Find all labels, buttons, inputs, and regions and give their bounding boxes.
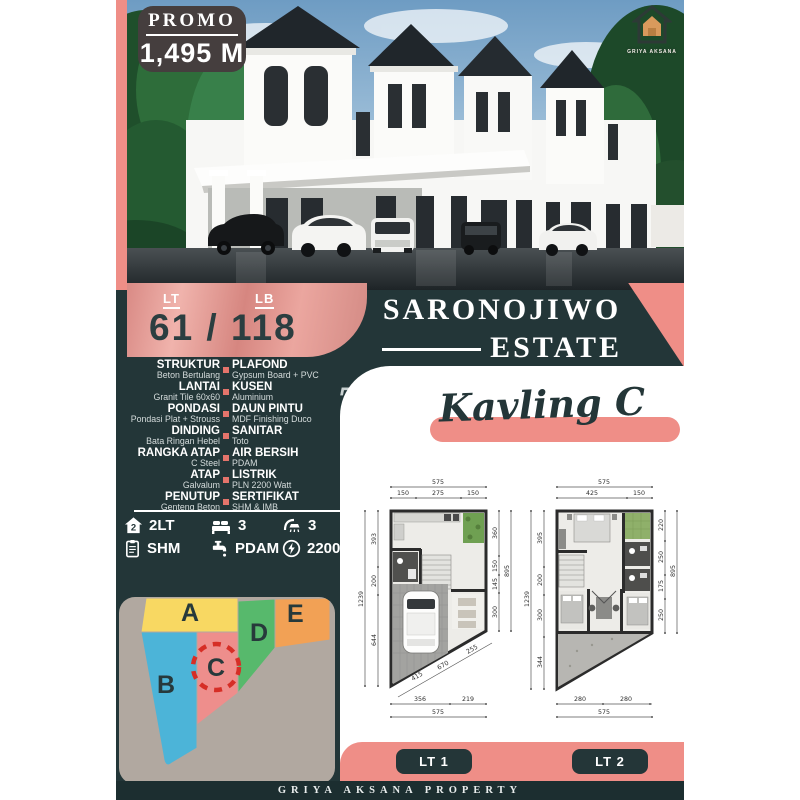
specs-list: STRUKTURBeton Bertulang PLAFONDGypsum Bo… xyxy=(120,360,368,514)
spec-row: LANTAIGranit Tile 60x60 KUSENAluminium xyxy=(120,382,368,402)
block-b-label: B xyxy=(157,671,175,699)
land-size-box: LT LB 61 / 118 xyxy=(127,283,367,357)
specs-divider xyxy=(134,510,350,512)
svg-text:200: 200 xyxy=(371,575,378,587)
flyer: PROMO 1,495 M GRIYA AKSANA LT LB 61 / 11… xyxy=(116,0,684,800)
svg-text:280: 280 xyxy=(620,696,632,703)
floorplan-lt1: 575 150 275 150 393 200 644 1239 360 150… xyxy=(356,471,518,731)
svg-text:150: 150 xyxy=(633,490,645,497)
spec-value: Granit Tile 60x60 xyxy=(120,393,220,402)
spec-bullet-square xyxy=(223,389,229,395)
promo-price: 1,495 M xyxy=(140,38,245,69)
svg-text:895: 895 xyxy=(504,565,511,577)
bed-icon xyxy=(210,517,232,535)
power-bolt-icon xyxy=(282,539,301,558)
lt1-badge: LT 1 xyxy=(396,749,472,774)
promo-label: PROMO xyxy=(146,10,238,36)
logo-text: GRIYA AKSANA xyxy=(622,49,682,55)
spec-bullet-square xyxy=(223,499,229,505)
feature-label: PDAM xyxy=(235,540,279,557)
spec-row: RANGKA ATAPC Steel AIR BERSIHPDAM xyxy=(120,448,368,468)
svg-text:1239: 1239 xyxy=(358,591,365,607)
feature-label: SHM xyxy=(147,540,180,557)
svg-text:575: 575 xyxy=(432,709,444,716)
svg-text:300: 300 xyxy=(492,606,499,618)
kavling-header: Kavling C xyxy=(340,366,684,456)
spec-row: ATAPGalvalum LISTRIKPLN 2200 Watt xyxy=(120,470,368,490)
svg-text:150: 150 xyxy=(397,490,409,497)
feature-bedrooms: 3 xyxy=(210,516,282,535)
svg-text:670: 670 xyxy=(436,660,450,672)
spec-value: Galvalum xyxy=(120,481,220,490)
spec-bullet-square xyxy=(223,367,229,373)
block-c-label: C xyxy=(207,654,225,682)
title-rule xyxy=(382,348,481,351)
svg-text:219: 219 xyxy=(462,696,474,703)
svg-text:280: 280 xyxy=(574,696,586,703)
svg-text:255: 255 xyxy=(465,644,479,656)
siteplan-panel: A B C D E xyxy=(119,597,335,784)
svg-text:175: 175 xyxy=(658,580,665,592)
floorplan-lt2: 575 425 150 395 200 300 344 1239 220 250… xyxy=(522,471,684,731)
feature-certificate: SHM xyxy=(124,539,210,558)
svg-text:250: 250 xyxy=(658,551,665,563)
feature-floors: 2 2LT xyxy=(124,516,210,535)
svg-text:200: 200 xyxy=(537,574,544,586)
faucet-icon xyxy=(210,539,229,558)
promo-badge: PROMO 1,495 M xyxy=(138,6,246,72)
shower-icon xyxy=(282,517,302,535)
estate-title: SARONOJIWO ESTATE xyxy=(382,293,622,368)
svg-text:150: 150 xyxy=(492,560,499,572)
block-e-label: E xyxy=(287,600,304,628)
feature-label: 2LT xyxy=(149,517,175,534)
svg-text:220: 220 xyxy=(658,519,665,531)
certificate-icon xyxy=(124,539,141,558)
svg-text:395: 395 xyxy=(537,532,544,544)
svg-text:895: 895 xyxy=(670,565,677,577)
developer-logo: GRIYA AKSANA xyxy=(622,4,682,55)
svg-text:344: 344 xyxy=(537,656,544,668)
kavling-panel: Kavling C xyxy=(340,366,684,781)
svg-text:150: 150 xyxy=(467,490,479,497)
svg-text:2: 2 xyxy=(131,522,136,533)
car-white-mpv xyxy=(371,218,414,253)
svg-text:250: 250 xyxy=(658,609,665,621)
spec-bullet-square xyxy=(223,411,229,417)
land-size-value: 61 / 118 xyxy=(149,307,359,349)
svg-text:575: 575 xyxy=(598,479,610,486)
siteplan-map: A B C D E xyxy=(119,597,335,784)
feature-water: PDAM xyxy=(210,539,282,558)
spec-bullet-square xyxy=(223,433,229,439)
footer-text: GRIYA AKSANA PROPERTY xyxy=(278,785,522,796)
spec-value: Bata Ringan Hebel xyxy=(120,437,220,446)
estate-subname: ESTATE xyxy=(490,331,622,368)
spec-row: PENUTUPGenteng Beton SERTIFIKATSHM & IMB xyxy=(120,492,368,512)
house-icon: 2 xyxy=(124,516,143,535)
svg-text:300: 300 xyxy=(537,609,544,621)
svg-text:145: 145 xyxy=(492,578,499,590)
spec-bullet-square xyxy=(223,477,229,483)
spec-row: STRUKTURBeton Bertulang PLAFONDGypsum Bo… xyxy=(120,360,368,380)
svg-text:644: 644 xyxy=(371,634,378,646)
house-logo-icon xyxy=(632,4,672,46)
svg-text:356: 356 xyxy=(414,696,426,703)
svg-text:360: 360 xyxy=(492,527,499,539)
feature-label: 3 xyxy=(308,517,316,534)
flyer-page: PROMO 1,495 M GRIYA AKSANA LT LB 61 / 11… xyxy=(0,0,800,800)
footer-bar: GRIYA AKSANA PROPERTY xyxy=(116,781,684,800)
left-accent-strip xyxy=(116,0,127,290)
svg-text:393: 393 xyxy=(371,533,378,545)
block-d-label: D xyxy=(250,619,268,647)
spec-row: PONDASIPondasi Plat + Strouss DAUN PINTU… xyxy=(120,404,368,424)
spec-value: Pondasi Plat + Strouss xyxy=(120,415,220,424)
svg-text:1239: 1239 xyxy=(524,591,531,607)
svg-text:575: 575 xyxy=(432,479,444,486)
estate-name: SARONOJIWO xyxy=(382,293,622,327)
spec-value: Beton Bertulang xyxy=(120,371,220,380)
feature-icons: 2 2LT 3 3 xyxy=(124,516,370,558)
spec-row: DINDINGBata Ringan Hebel SANITARToto xyxy=(120,426,368,446)
spec-value: C Steel xyxy=(120,459,220,468)
lt2-badge: LT 2 xyxy=(572,749,648,774)
floorplan-label-bar: LT 1 LT 2 xyxy=(340,742,684,781)
spec-bullet-square xyxy=(223,455,229,461)
svg-text:275: 275 xyxy=(432,490,444,497)
svg-text:575: 575 xyxy=(598,709,610,716)
svg-text:425: 425 xyxy=(586,490,598,497)
block-a-label: A xyxy=(181,599,199,627)
feature-label: 3 xyxy=(238,517,246,534)
